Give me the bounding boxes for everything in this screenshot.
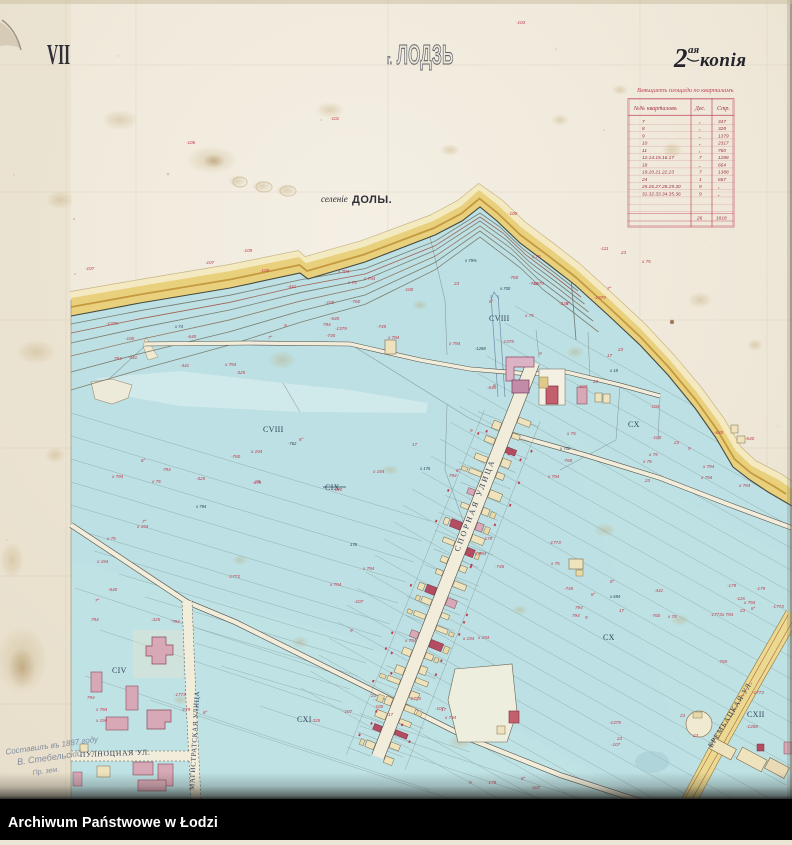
svg-text:7°: 7° bbox=[268, 335, 273, 340]
svg-text:794: 794 bbox=[572, 613, 580, 618]
svg-text:10: 10 bbox=[642, 141, 648, 147]
svg-text:„: „ bbox=[717, 185, 720, 190]
svg-text:-109: -109 bbox=[243, 248, 253, 253]
svg-text:-107: -107 bbox=[354, 599, 364, 604]
svg-text:x 18: x 18 bbox=[609, 368, 619, 373]
svg-text:-107: -107 bbox=[435, 706, 445, 711]
svg-text:-179: -179 bbox=[727, 583, 737, 588]
svg-text:19.20.21.22.23: 19.20.21.22.23 bbox=[642, 170, 674, 176]
svg-text:x 794: x 794 bbox=[362, 566, 375, 571]
svg-text:9: 9 bbox=[284, 323, 287, 328]
svg-text:1388: 1388 bbox=[718, 170, 729, 176]
svg-text:-325: -325 bbox=[311, 718, 321, 723]
svg-text:x 194: x 194 bbox=[372, 469, 385, 474]
svg-text:„: „ bbox=[698, 142, 701, 147]
svg-text:-1773: -1773 bbox=[409, 696, 421, 701]
svg-text:x 75: x 75 bbox=[550, 561, 560, 566]
svg-text:x 794: x 794 bbox=[743, 600, 756, 605]
svg-text:794: 794 bbox=[449, 473, 457, 478]
svg-text:x 194: x 194 bbox=[477, 635, 490, 640]
svg-text:-101: -101 bbox=[330, 116, 340, 121]
svg-text:23: 23 bbox=[620, 250, 627, 255]
svg-text:Дес.: Дес. bbox=[694, 106, 706, 112]
svg-text:x 794: x 794 bbox=[111, 474, 124, 479]
svg-text:23: 23 bbox=[592, 379, 599, 384]
svg-text:794: 794 bbox=[87, 695, 95, 700]
svg-text:x 75: x 75 bbox=[642, 459, 652, 464]
svg-text:x 794: x 794 bbox=[444, 715, 457, 720]
svg-text:CVIII: CVIII bbox=[489, 314, 510, 323]
svg-text:7°: 7° bbox=[95, 598, 100, 603]
svg-text:17: 17 bbox=[607, 353, 613, 358]
svg-text:-1379: -1379 bbox=[609, 720, 621, 725]
svg-text:-1773: -1773 bbox=[752, 690, 764, 695]
svg-text:7°: 7° bbox=[740, 694, 745, 699]
svg-text:-325: -325 bbox=[151, 617, 161, 622]
svg-text:328: 328 bbox=[718, 126, 726, 132]
svg-text:x 176: x 176 bbox=[419, 466, 431, 471]
svg-text:7: 7 bbox=[699, 170, 702, 176]
svg-text:794: 794 bbox=[323, 322, 331, 327]
svg-text:-1773: -1773 bbox=[772, 604, 784, 609]
svg-text:-100: -100 bbox=[260, 268, 270, 273]
svg-text:-106: -106 bbox=[186, 140, 196, 145]
svg-text:8°: 8° bbox=[489, 299, 494, 304]
svg-text:x 75: x 75 bbox=[524, 313, 534, 318]
svg-text:-441: -441 bbox=[180, 363, 190, 368]
svg-text:„: „ bbox=[717, 192, 720, 197]
svg-text:x 75: x 75 bbox=[667, 614, 677, 619]
svg-text:-640: -640 bbox=[745, 436, 755, 441]
svg-text:Archiwum Państwowe w Łodzi: Archiwum Państwowe w Łodzi bbox=[8, 815, 218, 831]
svg-text:-1379: -1379 bbox=[532, 281, 544, 286]
svg-text:-107: -107 bbox=[343, 709, 353, 714]
svg-text:-762: -762 bbox=[288, 441, 297, 446]
svg-text:-179: -179 bbox=[181, 707, 191, 712]
svg-text:x 794: x 794 bbox=[547, 474, 560, 479]
svg-text:11: 11 bbox=[642, 148, 647, 154]
svg-text:-115: -115 bbox=[736, 596, 745, 601]
svg-text:-107: -107 bbox=[611, 742, 621, 747]
svg-text:9: 9 bbox=[688, 446, 691, 451]
svg-text:-100: -100 bbox=[374, 704, 384, 709]
svg-text:CX: CX bbox=[603, 633, 615, 642]
svg-text:x 194: x 194 bbox=[462, 636, 475, 641]
svg-text:CX: CX bbox=[628, 420, 640, 429]
svg-text:-179: -179 bbox=[483, 536, 493, 541]
svg-text:8°: 8° bbox=[203, 710, 208, 715]
svg-text:x 794: x 794 bbox=[329, 582, 342, 587]
svg-text:8°: 8° bbox=[456, 468, 461, 473]
svg-text:23: 23 bbox=[644, 478, 651, 483]
svg-text:7°: 7° bbox=[477, 552, 482, 557]
svg-text:x 74: x 74 bbox=[174, 324, 184, 329]
svg-text:г. ЛОДЗЬ: г. ЛОДЗЬ bbox=[387, 38, 454, 70]
svg-text:-745: -745 bbox=[326, 333, 336, 338]
svg-text:x 794: x 794 bbox=[363, 276, 376, 281]
svg-text:CXI: CXI bbox=[297, 715, 312, 724]
svg-text:7°: 7° bbox=[607, 286, 612, 291]
svg-text:794: 794 bbox=[575, 605, 583, 610]
svg-text:x 794: x 794 bbox=[721, 612, 734, 617]
svg-text:667: 667 bbox=[718, 177, 726, 183]
svg-text:23: 23 bbox=[673, 440, 680, 445]
svg-text:-640: -640 bbox=[330, 316, 340, 321]
svg-text:-179: -179 bbox=[252, 480, 262, 485]
svg-text:26: 26 bbox=[696, 216, 703, 222]
svg-text:9: 9 bbox=[350, 628, 353, 633]
svg-text:-1773: -1773 bbox=[228, 574, 240, 579]
svg-text:-1288: -1288 bbox=[746, 724, 758, 729]
svg-text:x 75: x 75 bbox=[151, 479, 161, 484]
svg-text:8°: 8° bbox=[299, 437, 304, 442]
svg-text:x 794: x 794 bbox=[448, 341, 461, 346]
svg-text:x.700: x.700 bbox=[499, 286, 511, 291]
svg-text:-1379: -1379 bbox=[106, 321, 118, 326]
svg-text:9: 9 bbox=[539, 351, 542, 356]
svg-text:ая: ая bbox=[688, 44, 700, 56]
svg-text:x 794: x 794 bbox=[404, 638, 417, 643]
svg-text:8°: 8° bbox=[141, 458, 146, 463]
svg-text:-1379: -1379 bbox=[335, 326, 347, 331]
svg-text:664: 664 bbox=[718, 162, 726, 168]
svg-text:17: 17 bbox=[388, 712, 394, 717]
svg-text:8°: 8° bbox=[610, 579, 615, 584]
svg-text:1: 1 bbox=[699, 177, 702, 183]
svg-text:x 75: x 75 bbox=[648, 452, 658, 457]
svg-text:794: 794 bbox=[172, 619, 180, 624]
svg-text:ДОЛЫ.: ДОЛЫ. bbox=[352, 194, 392, 206]
svg-text:-760: -760 bbox=[509, 275, 519, 280]
svg-text:-760: -760 bbox=[231, 454, 241, 459]
svg-text:-760: -760 bbox=[718, 659, 728, 664]
svg-text:-107: -107 bbox=[205, 260, 215, 265]
svg-text:„: „ bbox=[698, 134, 701, 139]
svg-text:селеніе: селеніе bbox=[321, 194, 348, 204]
svg-text:17: 17 bbox=[619, 608, 625, 613]
svg-text:-100: -100 bbox=[652, 435, 662, 440]
svg-text:„: „ bbox=[698, 163, 701, 168]
svg-text:„: „ bbox=[698, 149, 701, 154]
svg-text:-640: -640 bbox=[108, 587, 118, 592]
svg-text:„: „ bbox=[698, 120, 701, 125]
svg-text:x 794: x 794 bbox=[702, 464, 715, 469]
svg-text:23: 23 bbox=[617, 347, 624, 352]
svg-text:-104: -104 bbox=[650, 404, 660, 409]
svg-text:x 75: x 75 bbox=[641, 259, 651, 264]
svg-text:-1773: -1773 bbox=[174, 692, 186, 697]
svg-text:8°: 8° bbox=[751, 606, 756, 611]
svg-text:178: 178 bbox=[350, 542, 358, 547]
svg-text:-745: -745 bbox=[564, 586, 574, 591]
svg-text:x 794: x 794 bbox=[738, 483, 751, 488]
svg-text:23: 23 bbox=[692, 733, 699, 738]
svg-text:23: 23 bbox=[616, 736, 623, 741]
svg-text:CIV: CIV bbox=[112, 666, 127, 675]
svg-text:x 794: x 794 bbox=[337, 269, 350, 274]
svg-text:x 75: x 75 bbox=[566, 431, 576, 436]
svg-text:794: 794 bbox=[114, 356, 122, 361]
svg-text:-441: -441 bbox=[128, 355, 138, 360]
svg-text:23: 23 bbox=[739, 608, 746, 613]
svg-text:x 794: x 794 bbox=[95, 707, 108, 712]
svg-text:2317: 2317 bbox=[717, 141, 729, 147]
svg-text:-111: -111 bbox=[600, 246, 609, 251]
svg-text:760: 760 bbox=[718, 148, 726, 154]
svg-text:-1773: -1773 bbox=[549, 540, 561, 545]
svg-text:9: 9 bbox=[470, 428, 473, 433]
svg-text:№№ кварталовъ: №№ кварталовъ bbox=[633, 106, 677, 112]
svg-text:x 694: x 694 bbox=[609, 594, 621, 599]
svg-text:CXII: CXII bbox=[747, 710, 765, 719]
svg-text:-760: -760 bbox=[651, 613, 661, 618]
svg-text:x 794: x 794 bbox=[224, 362, 237, 367]
svg-text:23: 23 bbox=[679, 713, 686, 718]
svg-text:Стр.: Стр. bbox=[717, 106, 730, 112]
svg-text:9: 9 bbox=[642, 133, 645, 139]
svg-text:-107: -107 bbox=[578, 384, 588, 389]
svg-text:31.32.33.34.35.36: 31.32.33.34.35.36 bbox=[642, 191, 681, 197]
svg-text:17: 17 bbox=[412, 442, 418, 447]
svg-text:-100: -100 bbox=[508, 211, 518, 216]
svg-text:-1379: -1379 bbox=[594, 295, 606, 300]
svg-text:-1379: -1379 bbox=[502, 339, 514, 344]
svg-text:23: 23 bbox=[453, 281, 460, 286]
svg-text:x 75: x 75 bbox=[347, 280, 357, 285]
svg-text:1818: 1818 bbox=[716, 216, 727, 222]
svg-text:-745: -745 bbox=[495, 564, 505, 569]
svg-text:347: 347 bbox=[718, 119, 726, 125]
svg-text:x 700: x 700 bbox=[559, 446, 571, 451]
svg-text:18: 18 bbox=[642, 162, 648, 168]
svg-text:-745: -745 bbox=[377, 324, 387, 329]
svg-text:-640: -640 bbox=[714, 430, 724, 435]
svg-text:12.14.15.16.17: 12.14.15.16.17 bbox=[642, 155, 674, 161]
svg-text:x 75: x 75 bbox=[106, 536, 116, 541]
svg-text:x 79%: x 79% bbox=[464, 258, 477, 263]
svg-text:-100: -100 bbox=[404, 287, 414, 292]
svg-text:x 75: x 75 bbox=[531, 254, 541, 259]
svg-text:VII: VII bbox=[47, 39, 70, 70]
svg-text:x 794: x 794 bbox=[700, 475, 713, 480]
svg-text:9: 9 bbox=[493, 383, 496, 388]
svg-text:-640: -640 bbox=[333, 487, 343, 492]
svg-text:-103: -103 bbox=[516, 20, 526, 25]
svg-text:-760: -760 bbox=[563, 458, 573, 463]
svg-text:-179: -179 bbox=[756, 586, 766, 591]
svg-text:-325: -325 bbox=[559, 301, 569, 306]
svg-text:-441: -441 bbox=[287, 284, 297, 289]
svg-text:-760: -760 bbox=[351, 299, 361, 304]
svg-text:24: 24 bbox=[641, 177, 648, 183]
svg-text:x 194: x 194 bbox=[136, 524, 149, 529]
svg-text:Вмѣщаетъ площади по кварталамъ: Вмѣщаетъ площади по кварталамъ bbox=[637, 87, 734, 94]
svg-text:x 194: x 194 bbox=[96, 559, 109, 564]
svg-text:8: 8 bbox=[642, 126, 645, 132]
svg-text:7: 7 bbox=[642, 119, 645, 125]
svg-text:x 794: x 794 bbox=[195, 504, 207, 509]
svg-text:9: 9 bbox=[699, 191, 702, 197]
svg-text:-441: -441 bbox=[654, 588, 664, 593]
svg-text:x 194: x 194 bbox=[250, 449, 263, 454]
svg-text:25.26.27.28.29.30: 25.26.27.28.29.30 bbox=[641, 184, 681, 190]
svg-text:23: 23 bbox=[370, 693, 377, 698]
svg-text:9: 9 bbox=[699, 184, 702, 190]
svg-text:x 794: x 794 bbox=[387, 335, 400, 340]
svg-text:-100: -100 bbox=[325, 300, 335, 305]
svg-text:7: 7 bbox=[699, 155, 702, 161]
svg-text:-1288: -1288 bbox=[475, 346, 486, 351]
svg-text:2: 2 bbox=[673, 43, 688, 73]
svg-text:-107: -107 bbox=[85, 266, 95, 271]
svg-text:794: 794 bbox=[163, 467, 171, 472]
svg-text:-100: -100 bbox=[125, 336, 135, 341]
svg-text:8°: 8° bbox=[591, 592, 596, 597]
svg-text:1379: 1379 bbox=[718, 133, 729, 139]
svg-text:копія: копія bbox=[700, 50, 747, 71]
svg-text:-1773: -1773 bbox=[710, 612, 722, 617]
svg-text:-640: -640 bbox=[187, 334, 197, 339]
svg-text:-325: -325 bbox=[196, 476, 206, 481]
svg-text:9: 9 bbox=[585, 615, 588, 620]
svg-text:„: „ bbox=[698, 127, 701, 132]
svg-text:-325: -325 bbox=[236, 370, 246, 375]
svg-text:CVIII: CVIII bbox=[263, 425, 284, 434]
svg-text:1288: 1288 bbox=[718, 155, 729, 161]
svg-text:794: 794 bbox=[91, 617, 99, 622]
svg-text:x 194: x 194 bbox=[95, 718, 108, 723]
